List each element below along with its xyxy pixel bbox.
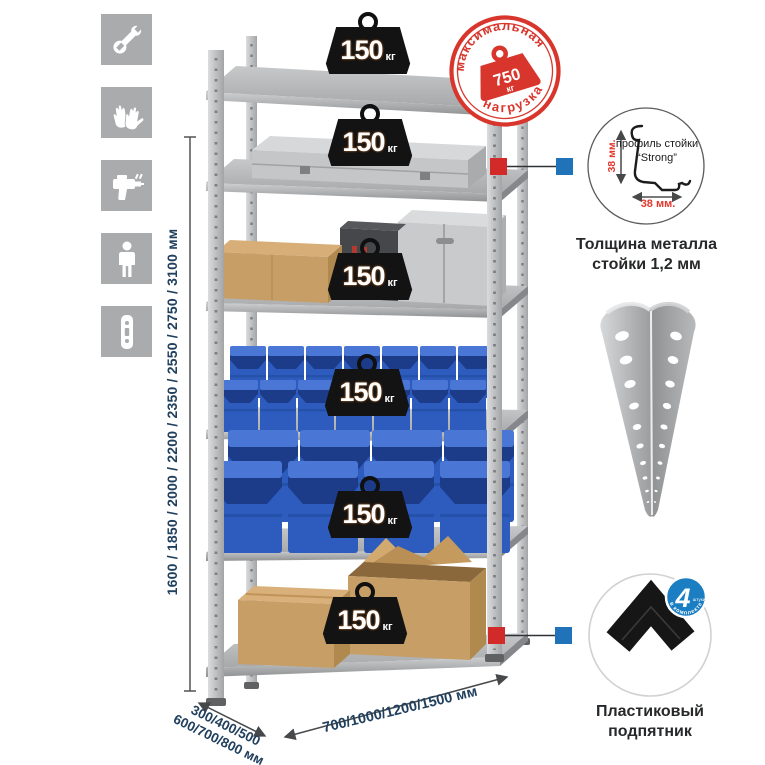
profile-caption: Толщина металла стойки 1,2 мм [570, 235, 723, 275]
badge-word: штуки [693, 597, 706, 602]
profile-vertical-dim: 38 мм. [606, 133, 618, 179]
product-infographic: максимальная нагрузка 750 кг [0, 0, 765, 765]
profile-horizontal-dim: 38 мм. [627, 198, 689, 210]
shelf5-load-badge: 150кг [327, 476, 413, 538]
quantity-badge: 4 штуки в комплекте [666, 577, 706, 617]
profile-label: профиль стойки “Strong” [615, 138, 699, 165]
cardboard-box-shelf3 [216, 240, 342, 303]
shelf3-load-badge: 150кг [327, 238, 413, 300]
shelf1-load-badge: 150кг [325, 12, 411, 74]
shelf2-load-badge: 150кг [327, 104, 413, 166]
perforated-angle-post [600, 304, 695, 517]
foot-caption: Пластиковый подпятник [574, 702, 726, 742]
height-dimension-line [184, 137, 196, 691]
max-load-stamp: максимальная нагрузка 750 кг [438, 4, 572, 138]
shelf6-load-badge: 150кг [322, 582, 408, 644]
shelf4-load-badge: 150кг [324, 354, 410, 416]
profile-callout-connector [490, 158, 573, 175]
height-dimension-label: 1600 / 1850 / 2000 / 2200 / 2350 / 2550 … [164, 127, 180, 697]
